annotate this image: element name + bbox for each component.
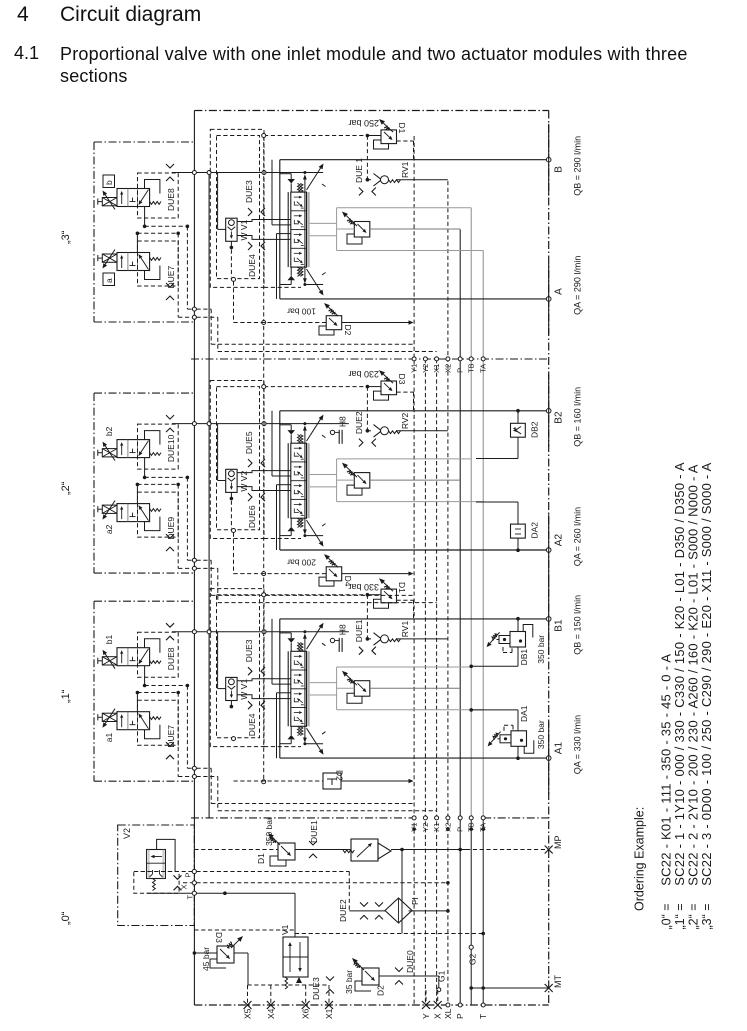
svg-text:T: T [186, 895, 195, 900]
svg-text:DA2: DA2 [530, 522, 540, 539]
svg-text:W V1: W V1 [239, 219, 249, 240]
svg-text:DUE2: DUE2 [338, 899, 348, 922]
svg-text:A2: A2 [554, 534, 565, 547]
svg-text:P: P [456, 368, 465, 373]
svg-text:RV1: RV1 [400, 161, 410, 178]
svg-text:RV1: RV1 [400, 621, 410, 638]
svg-text:X2: X2 [443, 364, 452, 373]
svg-text:b1: b1 [104, 634, 114, 644]
svg-text:P: P [455, 1013, 465, 1019]
svg-text:H8: H8 [338, 416, 348, 427]
svg-text:45 bar: 45 bar [201, 947, 211, 971]
svg-text:X5: X5 [243, 1008, 253, 1019]
svg-text:MT: MT [553, 975, 563, 988]
svg-text:b2: b2 [104, 426, 114, 436]
svg-text:a: a [104, 278, 114, 283]
svg-text:D2: D2 [335, 770, 345, 781]
svg-text:200 bar: 200 bar [287, 558, 316, 568]
svg-text:D2: D2 [343, 325, 353, 336]
svg-text:DUE3: DUE3 [244, 639, 254, 662]
svg-text:TB: TB [467, 363, 476, 373]
svg-text:X4: X4 [266, 1008, 276, 1019]
svg-text:35 bar: 35 bar [344, 970, 354, 994]
svg-text:350 bar: 350 bar [264, 817, 274, 846]
svg-text:100 bar: 100 bar [287, 307, 316, 317]
svg-text:X6: X6 [301, 1008, 311, 1019]
svg-text:„2“ =: „2“ = [686, 903, 700, 929]
svg-text:B1: B1 [554, 619, 565, 632]
svg-text:Y2: Y2 [421, 364, 430, 373]
svg-text:P: P [184, 872, 193, 877]
svg-text:XL: XL [443, 1008, 453, 1019]
svg-text:QA = 260 l/min: QA = 260 l/min [573, 507, 583, 566]
svg-text:DB1: DB1 [519, 649, 529, 666]
svg-text:„1“ =: „1“ = [673, 903, 687, 929]
svg-text:TA: TA [479, 364, 488, 373]
svg-text:QA = 290 l/min: QA = 290 l/min [573, 256, 583, 315]
svg-text:DUE4: DUE4 [247, 254, 257, 277]
svg-text:DUE3: DUE3 [311, 977, 321, 1000]
svg-text:DB2: DB2 [530, 421, 540, 438]
svg-text:a2: a2 [104, 524, 114, 534]
svg-text:D1: D1 [256, 853, 266, 864]
svg-text:350 bar: 350 bar [536, 635, 546, 664]
svg-text:V2: V2 [122, 828, 132, 839]
svg-text:330 bar: 330 bar [348, 582, 379, 592]
svg-text:„3“: „3“ [60, 230, 72, 244]
svg-text:B: B [554, 166, 565, 173]
svg-text:DUE1: DUE1 [354, 619, 364, 642]
svg-text:DUE 1: DUE 1 [354, 158, 364, 183]
svg-text:X: X [180, 884, 189, 889]
svg-text:DUE3: DUE3 [244, 180, 254, 203]
svg-text:QB = 290 l/min: QB = 290 l/min [573, 136, 583, 196]
svg-text:„3“ =: „3“ = [700, 903, 714, 929]
svg-text:G1: G1 [437, 970, 447, 982]
svg-text:X1: X1 [432, 364, 441, 373]
svg-text:Y1: Y1 [410, 364, 419, 373]
svg-text:B2: B2 [554, 411, 565, 424]
svg-text:DUE1: DUE1 [309, 820, 319, 843]
svg-text:250 bar: 250 bar [348, 118, 379, 128]
svg-text:DUE4: DUE4 [247, 713, 257, 736]
svg-text:QB = 160 l/min: QB = 160 l/min [573, 387, 583, 447]
svg-text:RV2: RV2 [400, 412, 410, 429]
svg-text:DUE8: DUE8 [166, 188, 176, 211]
svg-text:QA = 330 l/min: QA = 330 l/min [573, 715, 583, 774]
svg-text:DUE2: DUE2 [354, 411, 364, 434]
svg-text:H8: H8 [338, 624, 348, 635]
svg-text:350 bar: 350 bar [536, 720, 546, 749]
svg-text:MP: MP [553, 836, 563, 850]
svg-text:A1: A1 [554, 742, 565, 755]
svg-text:b: b [104, 180, 114, 185]
svg-text:DA1: DA1 [519, 705, 529, 722]
svg-text:D2: D2 [376, 985, 386, 996]
svg-text:„2“: „2“ [60, 481, 72, 495]
svg-text:DUE0: DUE0 [405, 950, 415, 973]
svg-text:„0“ =: „0“ = [660, 903, 674, 929]
svg-text:„1“: „1“ [60, 689, 72, 703]
svg-text:A: A [554, 288, 565, 295]
svg-text:„0“: „0“ [60, 911, 72, 925]
svg-text:G2: G2 [468, 953, 478, 965]
svg-text:T: T [478, 1014, 488, 1019]
svg-text:X1: X1 [324, 1008, 334, 1019]
svg-text:P: P [456, 827, 465, 832]
svg-text:Y: Y [421, 1013, 431, 1019]
svg-text:X: X [433, 1013, 443, 1019]
svg-text:Y2: Y2 [421, 823, 430, 832]
svg-text:Ordering Example:: Ordering Example: [632, 807, 646, 911]
svg-text:DUE10: DUE10 [166, 434, 176, 462]
svg-text:FI: FI [410, 897, 420, 905]
svg-text:SC22 - 3 - 0D00 - 100 / 250 -: SC22 - 3 - 0D00 - 100 / 250 - C290 / 290… [699, 462, 714, 885]
svg-text:X1: X1 [432, 823, 441, 832]
svg-text:D1: D1 [397, 582, 407, 593]
svg-text:D3: D3 [214, 932, 224, 943]
svg-text:QB = 150 l/min: QB = 150 l/min [573, 595, 583, 655]
svg-text:D1: D1 [397, 123, 407, 134]
svg-text:W V1: W V1 [239, 679, 249, 700]
svg-text:DUE6: DUE6 [247, 505, 257, 528]
svg-text:W V2: W V2 [239, 471, 249, 492]
svg-text:a1: a1 [104, 732, 114, 742]
svg-text:DUE8: DUE8 [166, 647, 176, 670]
svg-text:230 bar: 230 bar [348, 369, 379, 379]
svg-text:DUE5: DUE5 [244, 431, 254, 454]
svg-text:D3: D3 [397, 374, 407, 385]
